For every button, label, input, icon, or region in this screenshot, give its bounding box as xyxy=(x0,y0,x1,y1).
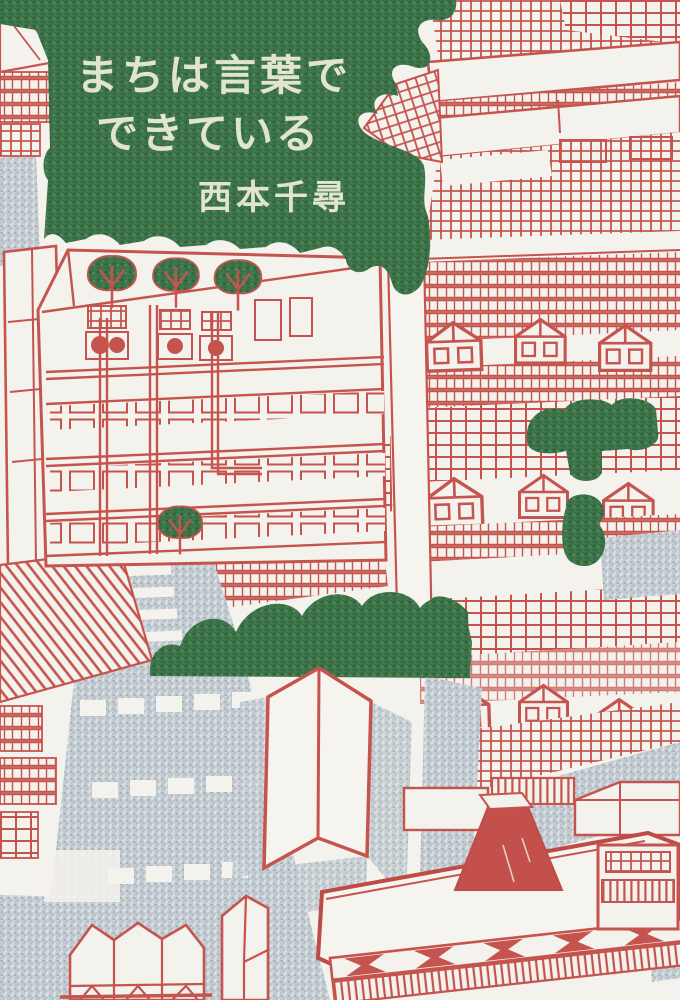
apartment-building xyxy=(38,250,386,566)
tall-shed xyxy=(222,896,268,1000)
title-line-1: まちは言葉で xyxy=(76,42,352,103)
publisher-backdrop xyxy=(44,850,120,902)
title-line-2: できている xyxy=(96,100,321,161)
roof-vent xyxy=(480,793,532,809)
author-name: 西本千尋 xyxy=(198,170,350,219)
book-cover: まちは言葉で できている 西本千尋 柏書房 xyxy=(0,0,680,1000)
